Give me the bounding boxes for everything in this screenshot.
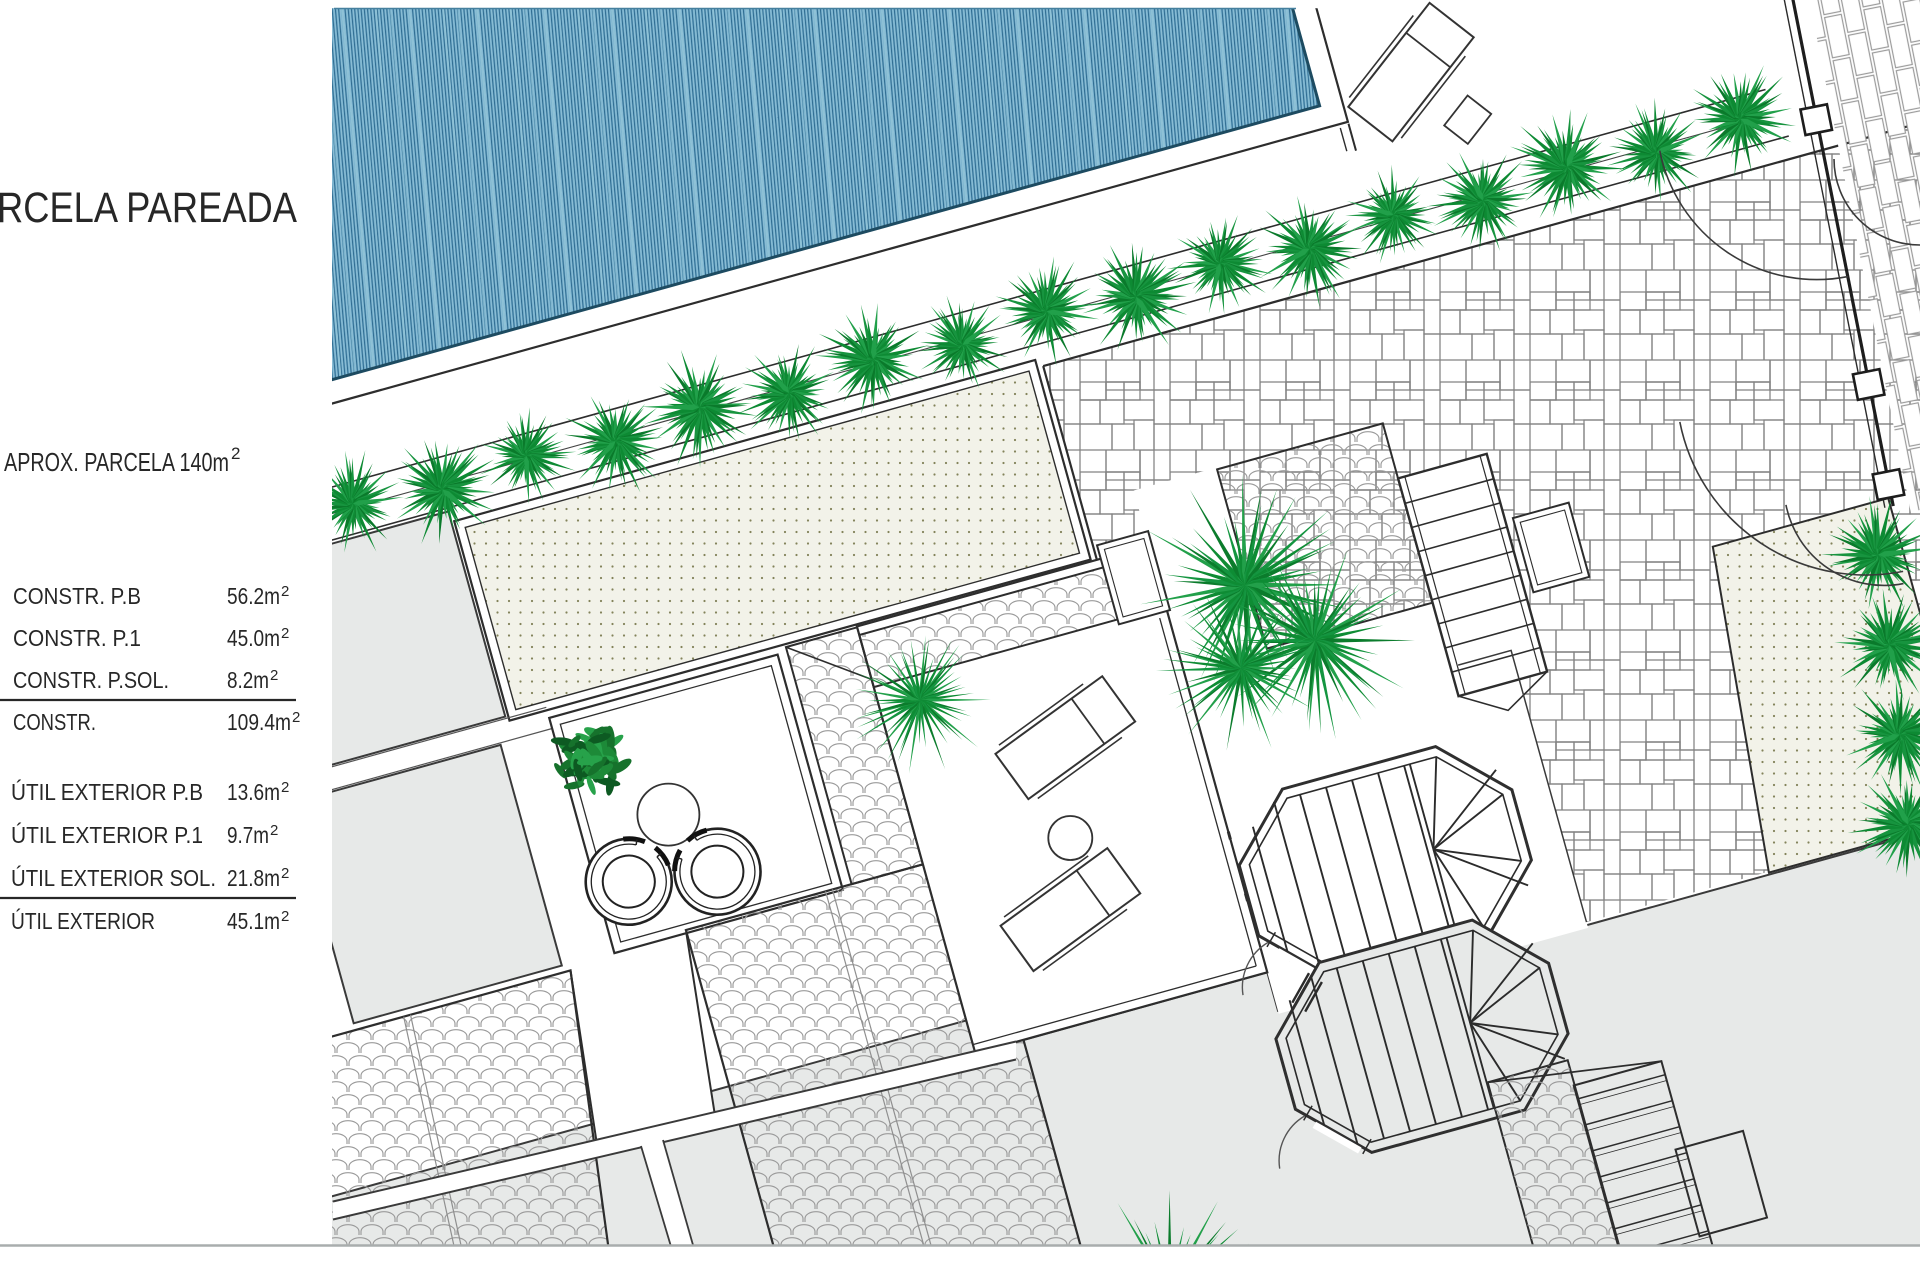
svg-text:ÚTIL EXTERIOR: ÚTIL EXTERIOR (11, 908, 155, 934)
svg-text:2: 2 (281, 625, 289, 642)
svg-text:CONSTR. P.SOL.: CONSTR. P.SOL. (13, 667, 169, 693)
svg-text:2: 2 (292, 709, 300, 726)
svg-text:2: 2 (270, 822, 278, 839)
svg-text:ÚTIL EXTERIOR P.1: ÚTIL EXTERIOR P.1 (11, 822, 203, 848)
svg-text:56.2m: 56.2m (227, 583, 280, 609)
svg-text:9.7m: 9.7m (227, 822, 269, 848)
svg-text:ÚTIL EXTERIOR SOL.: ÚTIL EXTERIOR SOL. (11, 865, 216, 891)
svg-text:21.8m: 21.8m (227, 865, 280, 891)
svg-text:2: 2 (270, 667, 278, 684)
svg-text:CONSTR. P.B: CONSTR. P.B (13, 583, 141, 609)
svg-text:ÚTIL EXTERIOR P.B: ÚTIL EXTERIOR P.B (11, 779, 203, 805)
svg-text:45.0m: 45.0m (227, 625, 280, 651)
svg-text:2: 2 (231, 444, 240, 463)
svg-text:CONSTR.: CONSTR. (13, 709, 96, 735)
svg-text:45.1m: 45.1m (227, 908, 280, 934)
svg-text:13.6m: 13.6m (227, 779, 280, 805)
svg-text:109.4m: 109.4m (227, 709, 291, 735)
svg-text:2: 2 (281, 779, 289, 796)
svg-text:RCELA PAREADA: RCELA PAREADA (0, 184, 297, 232)
svg-text:2: 2 (281, 583, 289, 600)
svg-text:APROX. PARCELA 140m: APROX. PARCELA 140m (4, 447, 229, 477)
svg-text:2: 2 (281, 908, 289, 925)
svg-text:2: 2 (281, 865, 289, 882)
svg-text:8.2m: 8.2m (227, 667, 269, 693)
svg-text:CONSTR. P.1: CONSTR. P.1 (13, 625, 141, 651)
